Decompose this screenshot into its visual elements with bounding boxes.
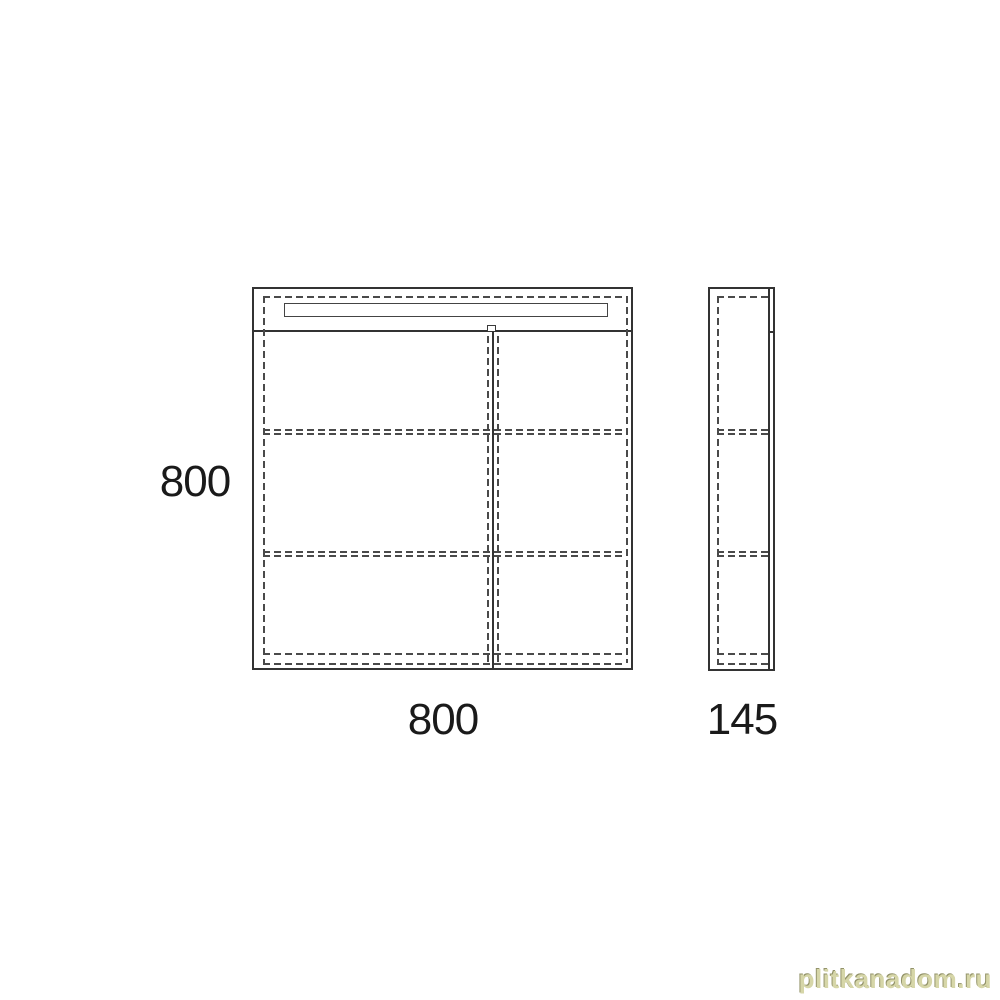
side-shelf-2-dashed-line — [717, 551, 768, 553]
door-split-dashed-line — [497, 336, 499, 663]
side-bottom-panel-dashed-line — [717, 653, 768, 655]
top-panel-divider-line — [254, 330, 631, 332]
shelf-2-dashed-line — [263, 555, 626, 557]
shelf-1-dashed-line — [263, 429, 626, 431]
shelf-1-dashed-line — [263, 433, 626, 435]
front-view-box — [252, 287, 633, 670]
technical-drawing-canvas: 800 800 145 plitkanadom.ru — [0, 0, 1000, 1000]
shelf-2-dashed-line — [263, 551, 626, 553]
side-back-panel-dashed-line — [717, 296, 719, 663]
light-strip — [284, 303, 608, 317]
left-side-panel-dashed-line — [263, 296, 265, 663]
right-side-panel-dashed-line — [626, 296, 628, 663]
side-view-box — [708, 287, 775, 671]
front-top-edge-dashed-line — [263, 296, 626, 298]
door-edge-tick — [770, 331, 773, 333]
bottom-panel-dashed-line — [263, 653, 626, 655]
side-shelf-1-dashed-line — [717, 433, 768, 435]
watermark-text: plitkanadom.ru — [799, 964, 992, 995]
width-dimension-label: 800 — [393, 698, 493, 742]
side-bottom-panel-dashed-line — [717, 663, 768, 665]
door-split-dashed-line — [487, 336, 489, 663]
bottom-panel-dashed-line — [263, 663, 626, 665]
side-shelf-1-dashed-line — [717, 429, 768, 431]
height-dimension-label: 800 — [145, 460, 245, 504]
depth-dimension-label: 145 — [692, 698, 792, 742]
door-split-line — [492, 330, 494, 668]
hinge-tab — [487, 325, 496, 331]
door-edge-line — [768, 289, 770, 669]
side-top-edge-dashed-line — [717, 296, 768, 298]
side-shelf-2-dashed-line — [717, 555, 768, 557]
